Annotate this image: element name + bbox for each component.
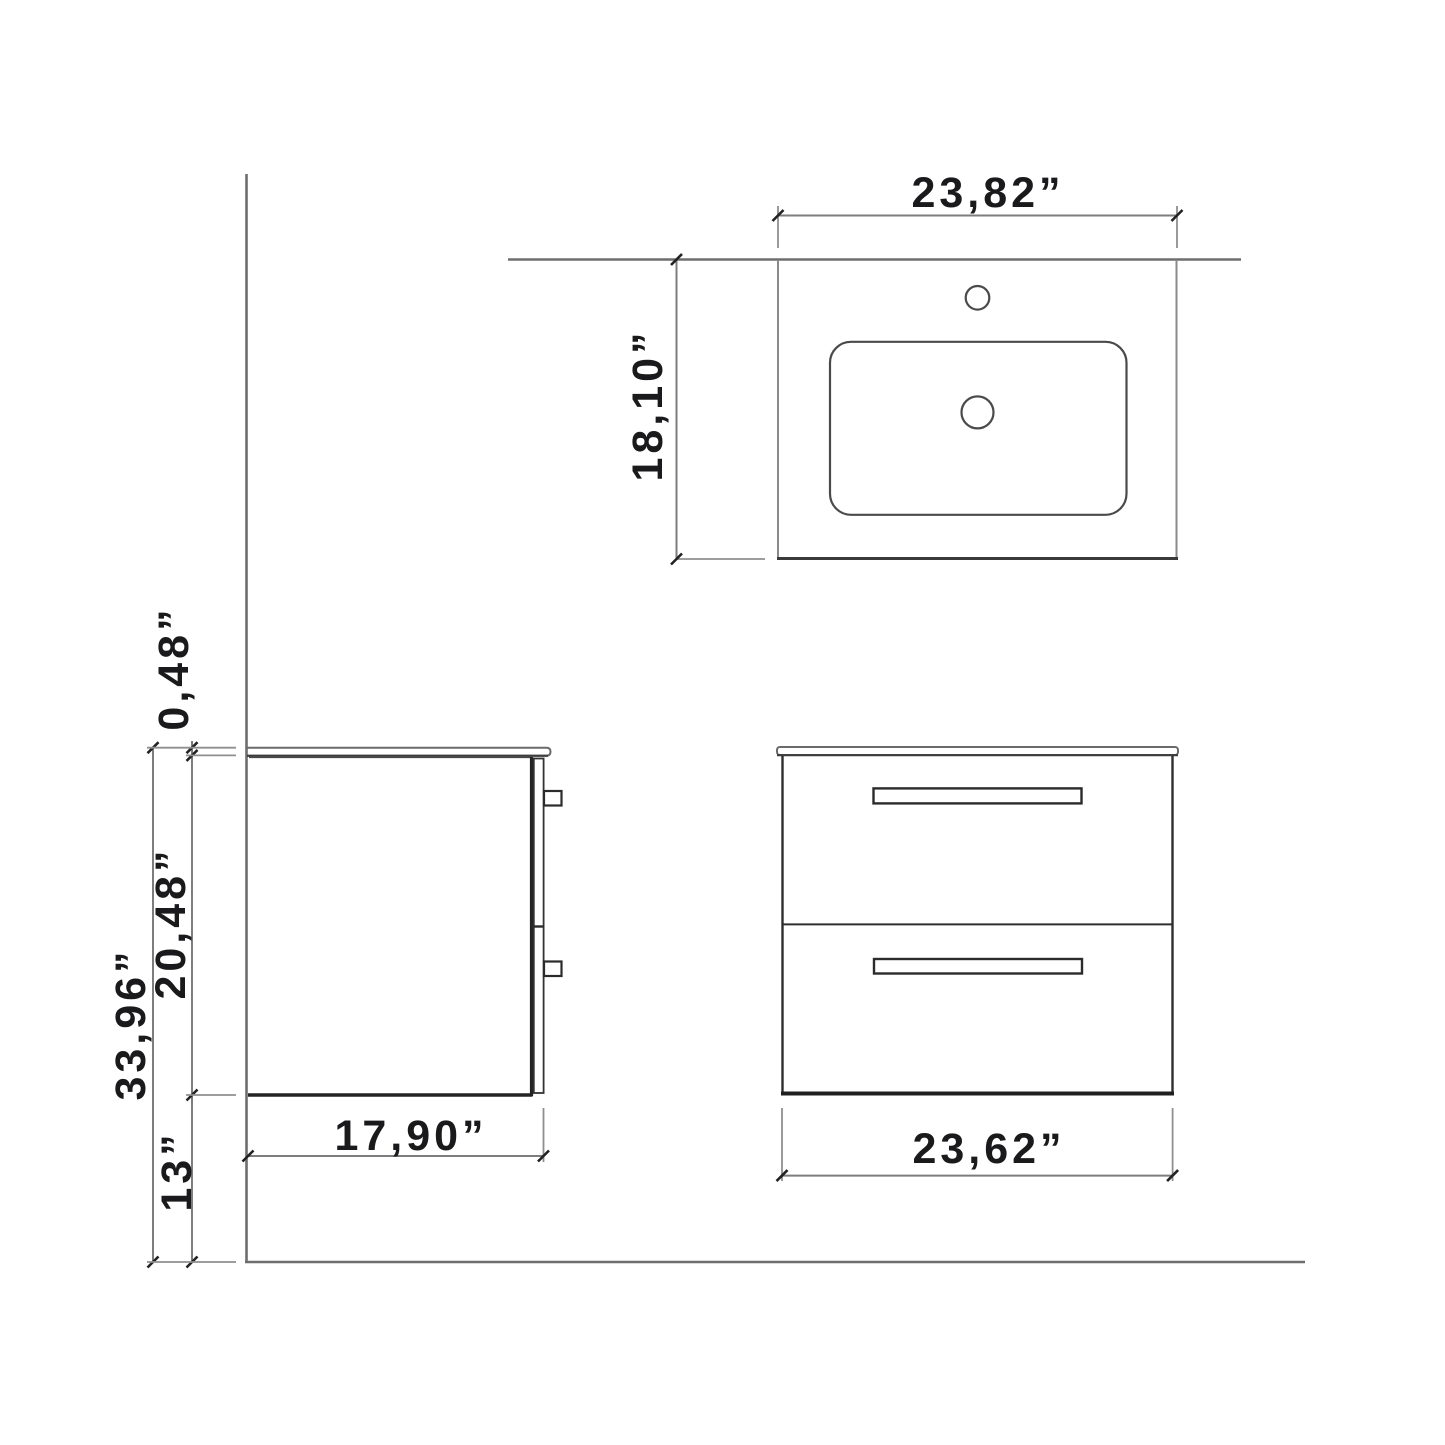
- svg-text:17,90”: 17,90”: [334, 1112, 487, 1160]
- svg-text:0,48”: 0,48”: [150, 605, 198, 730]
- svg-text:13”: 13”: [153, 1130, 201, 1211]
- svg-text:23,62”: 23,62”: [912, 1125, 1065, 1173]
- svg-text:23,82”: 23,82”: [911, 169, 1064, 217]
- svg-text:20,48”: 20,48”: [147, 846, 195, 999]
- svg-text:18,10”: 18,10”: [624, 328, 672, 481]
